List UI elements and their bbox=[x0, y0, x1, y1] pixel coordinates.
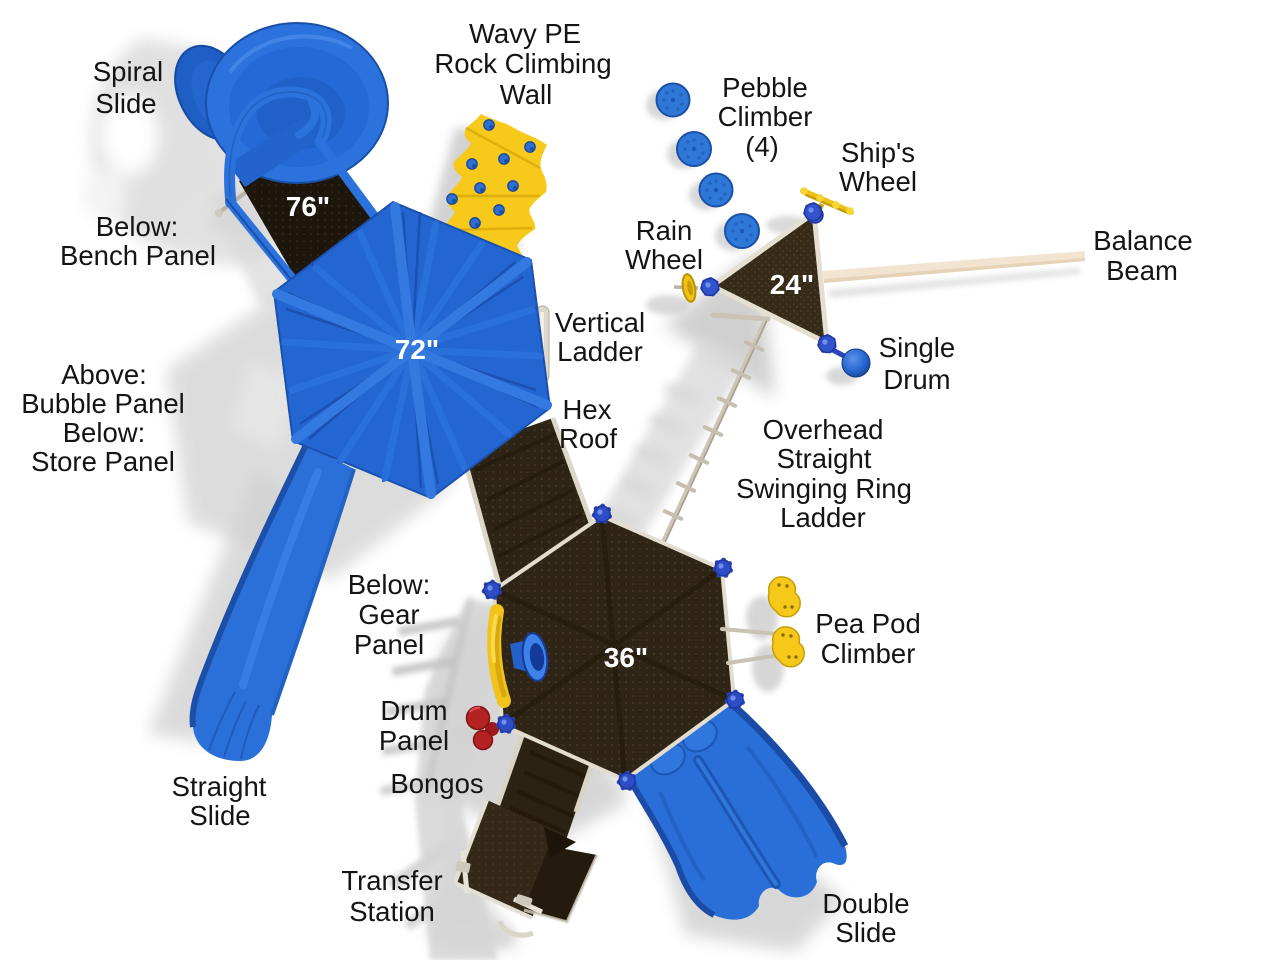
svg-text:Bongos: Bongos bbox=[390, 768, 483, 799]
svg-text:Below:: Below: bbox=[63, 417, 146, 448]
svg-text:Double: Double bbox=[822, 888, 909, 919]
svg-text:Rain: Rain bbox=[636, 215, 693, 246]
svg-text:Beam: Beam bbox=[1106, 255, 1178, 286]
svg-text:Roof: Roof bbox=[559, 423, 617, 454]
svg-text:Single: Single bbox=[879, 332, 955, 363]
svg-text:Drum: Drum bbox=[380, 695, 447, 726]
svg-text:Wavy PE: Wavy PE bbox=[469, 18, 581, 49]
svg-text:Straight: Straight bbox=[777, 443, 872, 474]
svg-text:72": 72" bbox=[395, 334, 439, 365]
svg-text:Below:: Below: bbox=[348, 569, 431, 600]
svg-text:Slide: Slide bbox=[189, 800, 250, 831]
svg-text:Straight: Straight bbox=[172, 771, 267, 802]
svg-text:Wheel: Wheel bbox=[839, 166, 917, 197]
svg-text:Transfer: Transfer bbox=[341, 865, 442, 896]
svg-text:Vertical: Vertical bbox=[555, 307, 645, 338]
svg-text:Pebble: Pebble bbox=[722, 72, 808, 103]
svg-text:(4): (4) bbox=[745, 131, 779, 162]
svg-text:Panel: Panel bbox=[379, 725, 449, 756]
svg-text:Ladder: Ladder bbox=[780, 502, 866, 533]
svg-text:Drum: Drum bbox=[883, 364, 950, 395]
svg-text:Panel: Panel bbox=[354, 629, 424, 660]
svg-text:Climber: Climber bbox=[718, 101, 813, 132]
svg-text:Climber: Climber bbox=[821, 638, 916, 669]
svg-text:Above:: Above: bbox=[61, 359, 147, 390]
svg-text:24": 24" bbox=[770, 269, 814, 300]
svg-text:Hex: Hex bbox=[563, 394, 612, 425]
svg-text:Spiral: Spiral bbox=[93, 56, 163, 87]
svg-text:Station: Station bbox=[349, 896, 435, 927]
svg-text:Pea Pod: Pea Pod bbox=[815, 608, 921, 639]
svg-text:Ladder: Ladder bbox=[557, 336, 643, 367]
svg-text:Swinging Ring: Swinging Ring bbox=[736, 473, 912, 504]
svg-text:Balance: Balance bbox=[1093, 225, 1192, 256]
svg-text:76": 76" bbox=[286, 191, 330, 222]
svg-text:Ship's: Ship's bbox=[841, 137, 915, 168]
svg-text:Below:: Below: bbox=[96, 211, 179, 242]
svg-text:Bench Panel: Bench Panel bbox=[60, 240, 216, 271]
svg-text:Wheel: Wheel bbox=[625, 244, 703, 275]
svg-text:Rock Climbing: Rock Climbing bbox=[434, 48, 611, 79]
svg-text:Slide: Slide bbox=[95, 88, 156, 119]
svg-text:36": 36" bbox=[604, 642, 648, 673]
svg-text:Overhead: Overhead bbox=[763, 414, 884, 445]
svg-text:Wall: Wall bbox=[500, 79, 552, 110]
svg-text:Gear: Gear bbox=[358, 599, 419, 630]
svg-text:Bubble Panel: Bubble Panel bbox=[21, 388, 185, 419]
svg-text:Slide: Slide bbox=[835, 917, 896, 948]
svg-text:Store Panel: Store Panel bbox=[31, 446, 175, 477]
